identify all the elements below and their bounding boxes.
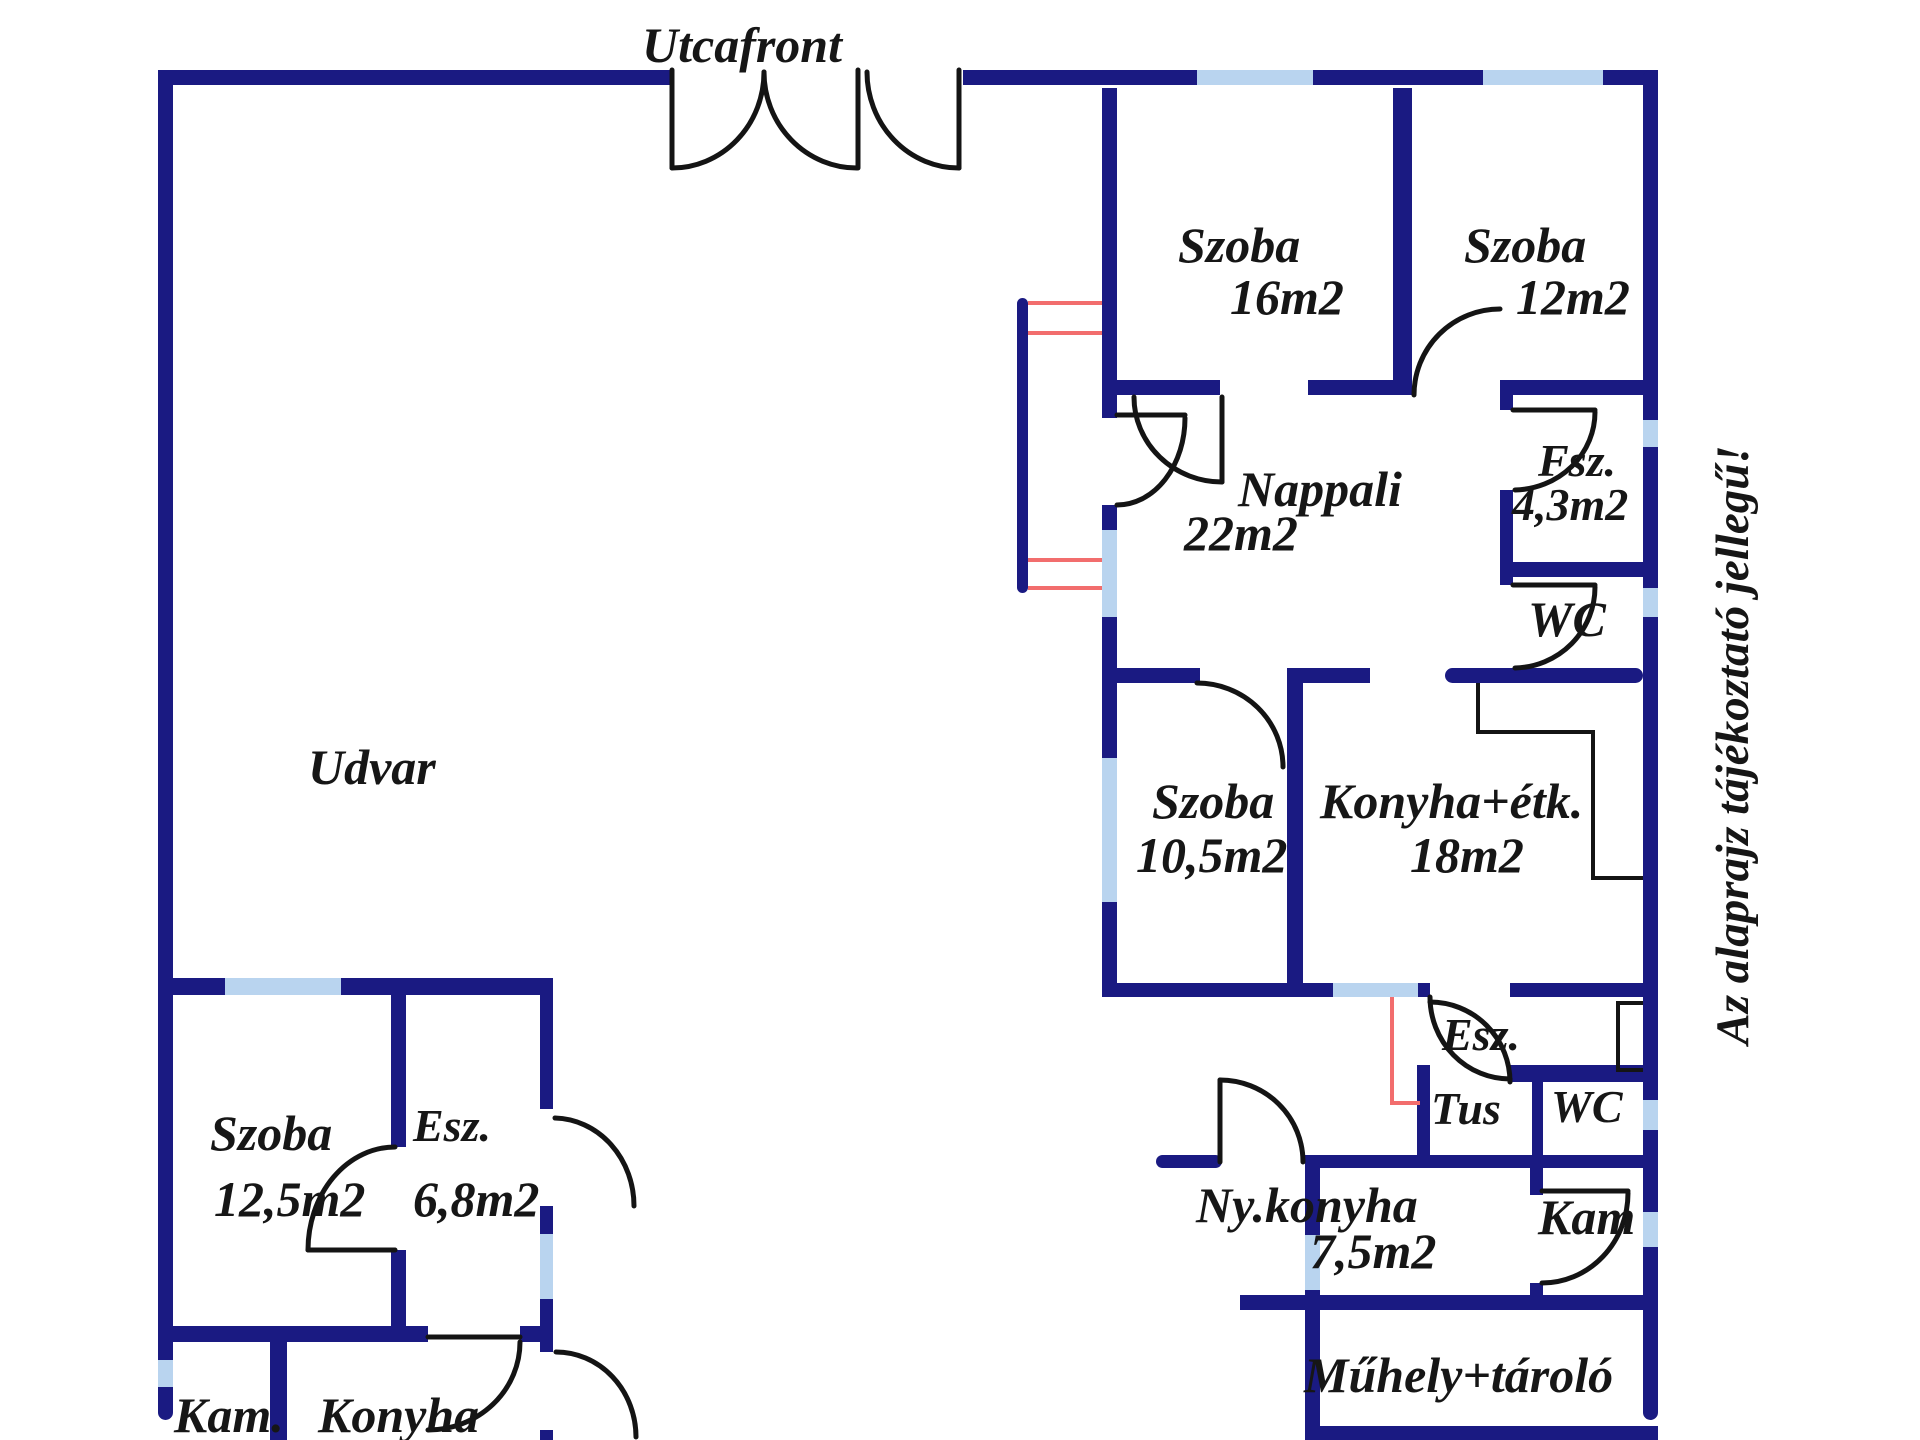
esz-left-name: Esz. (413, 1103, 491, 1149)
szoba12-name: Szoba (1464, 220, 1586, 270)
wc-upper-label: WC (1528, 594, 1606, 644)
esz-closet-outline (1618, 1003, 1643, 1070)
szoba125-area: 12,5m2 (214, 1174, 365, 1224)
szoba12-area: 12m2 (1516, 272, 1630, 322)
szoba105-name: Szoba (1152, 776, 1274, 826)
wc-lower-label: WC (1551, 1084, 1623, 1130)
fsz-area: 4,3m2 (1512, 482, 1628, 528)
terrace-door-arc (1117, 418, 1185, 505)
floor-plan: Utcafront Udvar Szoba 16m2 Szoba 12m2 Na… (0, 0, 1920, 1440)
disclaimer-vertical-text: Az alaprajz tájékoztató jellegű! (1703, 335, 1763, 1155)
szoba105-door-arc (1197, 683, 1283, 767)
szoba105-area: 10,5m2 (1136, 830, 1287, 880)
entry-door-arc (867, 72, 959, 168)
esz-right-label: Esz. (1442, 1012, 1520, 1058)
szoba16-door-arc (1134, 397, 1222, 482)
courtyard-label: Udvar (308, 742, 436, 792)
konyha-etk-area: 18m2 (1410, 830, 1524, 880)
kam-left-label: Kam. (174, 1390, 284, 1440)
szoba16-area: 16m2 (1230, 272, 1344, 322)
fsz-name: Fsz. (1538, 438, 1616, 484)
street-front-label: Utcafront (642, 20, 842, 70)
nappali-area: 22m2 (1184, 508, 1298, 558)
szoba16-name: Szoba (1178, 220, 1300, 270)
szoba125-name: Szoba (210, 1108, 332, 1158)
konyha-etk-name: Konyha+étk. (1320, 776, 1583, 826)
gate-right-door-arc (764, 72, 857, 168)
nykonyha-area: 7,5m2 (1310, 1226, 1436, 1276)
esz-left-area: 6,8m2 (413, 1174, 539, 1224)
konyha-exterior-door-arc (556, 1352, 636, 1437)
red-marker-line (1392, 997, 1420, 1103)
tus-label: Tus (1431, 1086, 1501, 1132)
muhely-label: Műhely+tároló (1304, 1350, 1613, 1400)
annex-east-door-arc (555, 1118, 634, 1206)
gate-left-door-arc (672, 72, 764, 168)
back-door-arc (1220, 1080, 1303, 1162)
szoba12-door-arc (1414, 309, 1500, 395)
konyha-left-label: Konyha (318, 1390, 479, 1440)
kam-right-label: Kam (1538, 1192, 1635, 1242)
